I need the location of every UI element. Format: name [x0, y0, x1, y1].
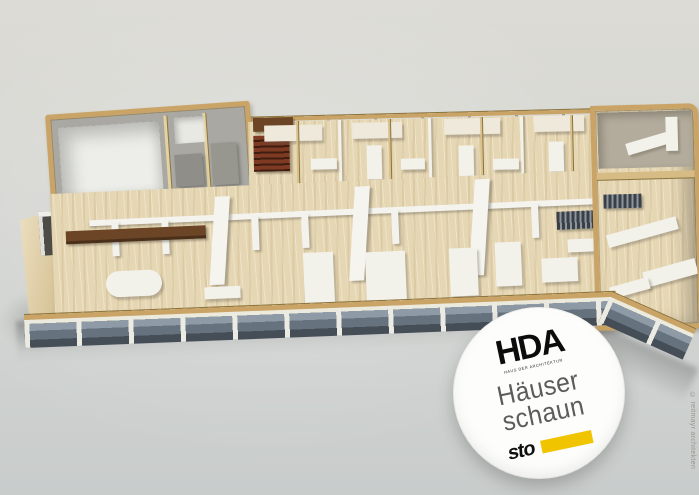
sofa-block [642, 258, 698, 288]
furniture-block [493, 158, 519, 170]
wardrobe-block [534, 115, 584, 132]
photo-of-architectural-model: HDA HAUS DER ARCHITEKTUR Häuser schaun s… [0, 0, 699, 495]
counter-block [606, 216, 679, 248]
furniture-block [548, 141, 564, 171]
furniture-block [625, 131, 671, 155]
bed-block [303, 252, 335, 305]
sto-logo-yellow-bar [540, 430, 594, 454]
wardrobe-block [444, 118, 500, 135]
furniture-block [204, 286, 240, 300]
furniture-block [665, 117, 678, 151]
column [391, 210, 399, 244]
small-room [173, 116, 205, 144]
furniture-block [311, 158, 337, 170]
grey-room-box [174, 153, 204, 187]
column [251, 216, 259, 250]
partition-wall [520, 116, 524, 180]
plywood-wall [597, 170, 695, 180]
column [301, 214, 309, 248]
plywood-partition [163, 115, 172, 200]
sofa-block [541, 257, 578, 283]
sto-logo: sto [507, 439, 535, 465]
badge-content: HDA HAUS DER ARCHITEKTUR Häuser schaun s… [467, 318, 611, 467]
bed-block [365, 251, 407, 307]
wardrobe-block [264, 124, 322, 141]
grey-room-box [210, 142, 239, 186]
grey-room [597, 110, 692, 168]
slatted-cabinet [603, 194, 641, 209]
bed-block [449, 247, 479, 296]
event-badge-sticker: HDA HAUS DER ARCHITEKTUR Häuser schaun s… [453, 307, 625, 479]
photo-credit: © reitmayr architekten [689, 392, 696, 469]
partition-wall [338, 120, 342, 184]
walnut-shelf [66, 225, 206, 244]
wardrobe-block [352, 122, 402, 139]
cross-wall [210, 196, 230, 285]
furniture-block [459, 145, 475, 177]
furniture-block [367, 145, 383, 179]
furniture-block [401, 158, 425, 170]
column [531, 204, 539, 238]
rounded-table [105, 269, 162, 297]
bed-block [495, 242, 523, 287]
partition-wall [428, 118, 432, 182]
